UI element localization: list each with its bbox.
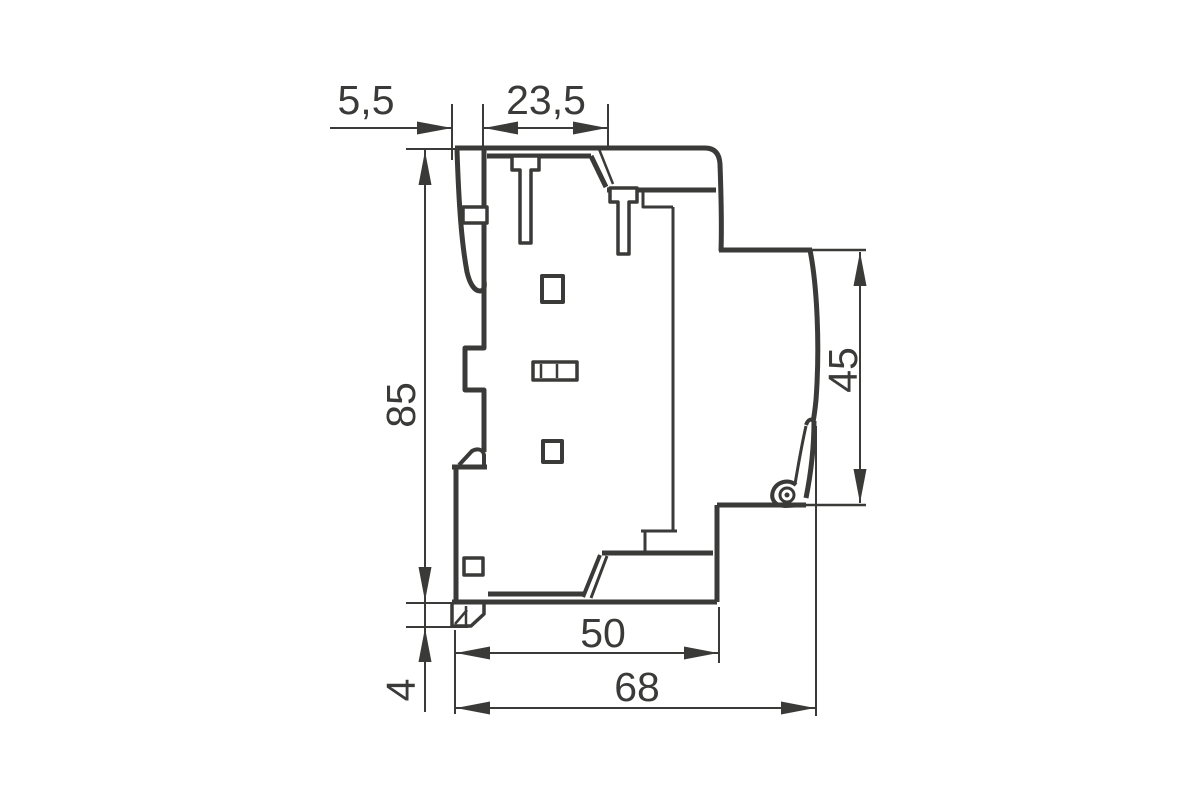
dimension-top-terminal-width: 23,5 <box>484 77 608 150</box>
lip-window <box>463 207 487 223</box>
arrowhead-left <box>456 647 490 660</box>
dim-label-45: 45 <box>820 347 866 393</box>
arrowhead-down <box>419 567 432 601</box>
dimension-overall-depth: 68 <box>455 426 816 716</box>
terminal-screw-right <box>610 188 637 254</box>
face-window-lower-left <box>464 558 483 575</box>
dimension-base-depth: 50 <box>455 607 719 714</box>
rail-hook-outer <box>806 421 814 498</box>
dim-label-50: 50 <box>580 610 626 656</box>
rail-hook-hole-center <box>785 493 790 498</box>
face-window-bottom <box>543 441 562 462</box>
dim-label-5-5: 5,5 <box>338 77 395 123</box>
arrowhead-right <box>781 702 815 715</box>
arrowhead-left <box>484 122 518 135</box>
technical-drawing-page: 5,5 23,5 85 4 45 50 <box>0 0 1200 800</box>
arrowhead-up <box>419 628 432 662</box>
front-face <box>465 148 484 452</box>
arrowhead-right <box>417 122 452 135</box>
device-outline <box>452 148 866 602</box>
face-window-top <box>542 276 563 302</box>
dim-label-4: 4 <box>378 679 424 702</box>
dim-label-68: 68 <box>614 664 660 710</box>
terminal-area <box>487 149 716 554</box>
slide-clip-edge-1 <box>583 555 600 597</box>
rail-hook-inner <box>795 426 806 484</box>
side-view-dimension-drawing: 5,5 23,5 85 4 45 50 <box>0 0 1200 800</box>
arrowhead-right <box>573 122 607 135</box>
front-claw <box>459 449 484 466</box>
face-switch-slot <box>533 362 577 380</box>
dim-label-85: 85 <box>378 382 424 428</box>
arrowhead-up <box>419 151 432 185</box>
arrowhead-up <box>854 252 867 286</box>
arrowhead-right <box>684 647 718 660</box>
top-edge <box>455 148 721 251</box>
back-bulge <box>810 250 818 422</box>
inner-step-top <box>643 192 673 207</box>
arrowhead-down <box>854 469 867 503</box>
extension-lines <box>406 603 489 627</box>
dimension-back-section-height: 45 <box>820 252 867 503</box>
terminal-screw-left <box>512 156 539 243</box>
arrowhead-left <box>456 702 490 715</box>
dim-label-23-5: 23,5 <box>506 77 586 123</box>
